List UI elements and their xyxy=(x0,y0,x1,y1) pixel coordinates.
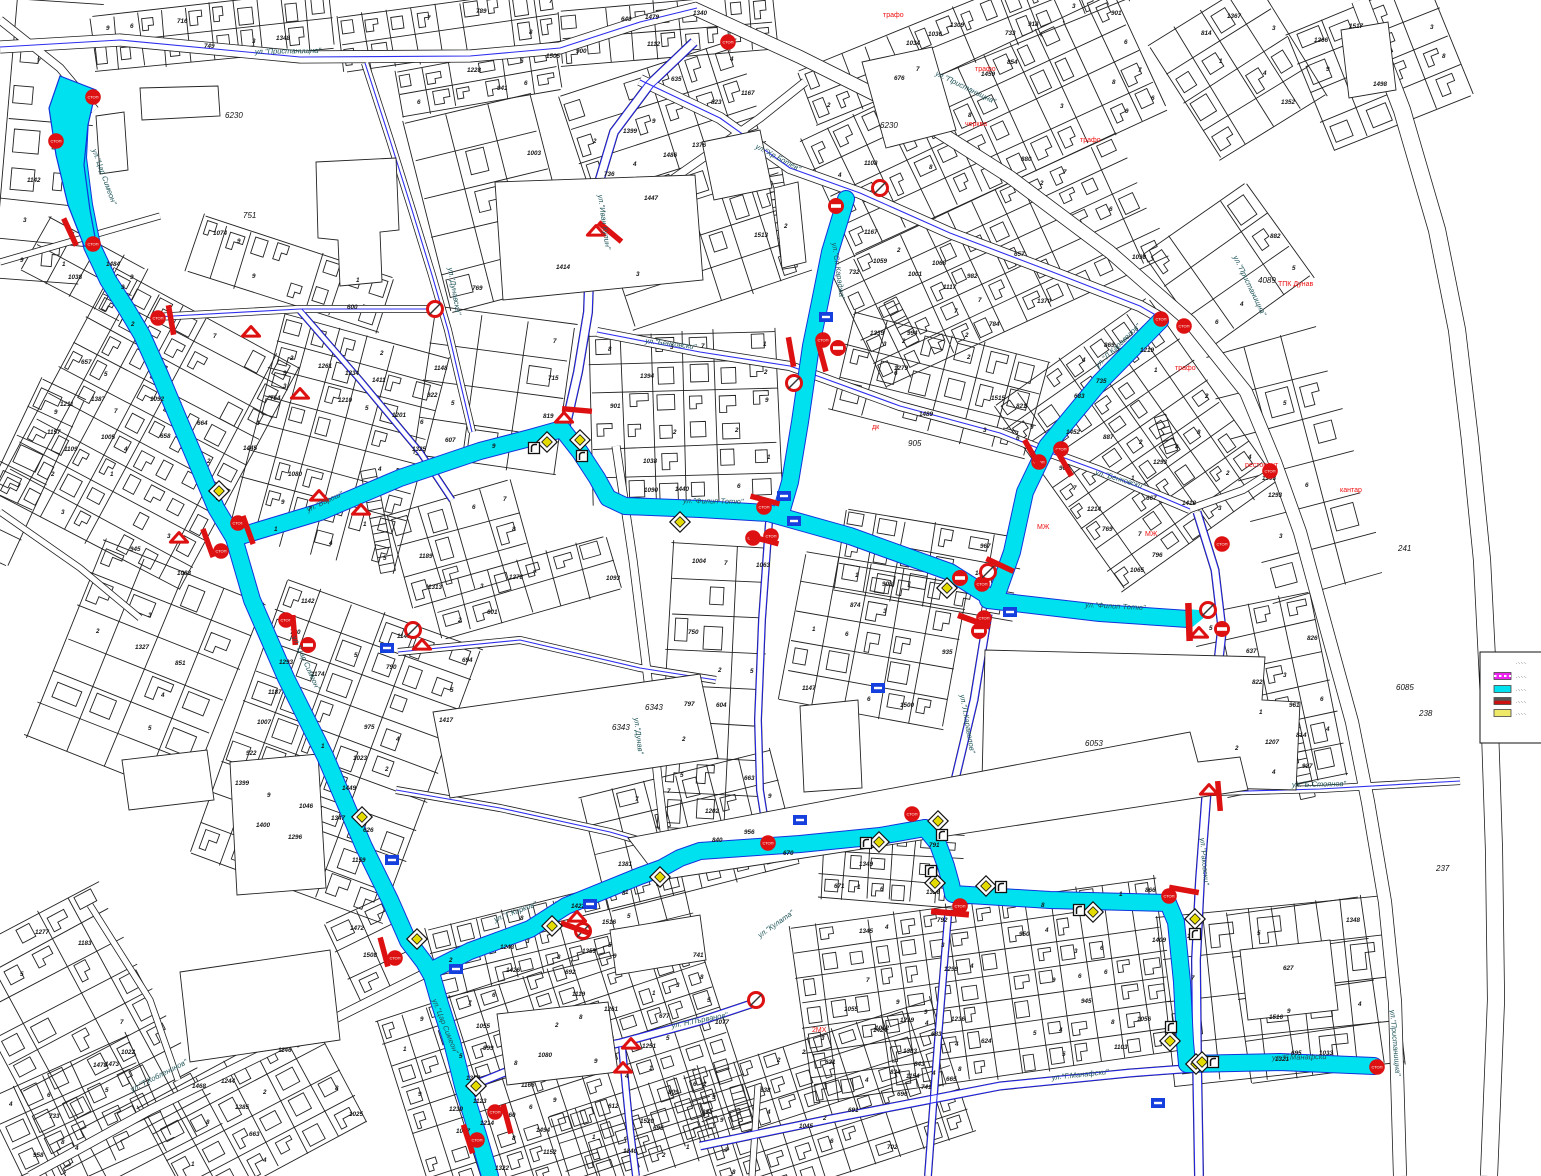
svg-text:2: 2 xyxy=(901,338,906,345)
svg-text:7: 7 xyxy=(866,977,870,984)
svg-text:1296: 1296 xyxy=(288,834,303,841)
svg-text:241: 241 xyxy=(1397,544,1411,553)
svg-text:1207: 1207 xyxy=(1265,739,1280,746)
svg-text:1: 1 xyxy=(763,341,767,348)
svg-text:1513: 1513 xyxy=(754,232,769,239)
svg-text:1211: 1211 xyxy=(60,401,74,408)
svg-text:СТОП: СТОП xyxy=(762,841,773,846)
svg-text:2: 2 xyxy=(801,1049,806,1056)
svg-text:9: 9 xyxy=(267,792,271,799)
svg-text:7: 7 xyxy=(635,796,639,803)
svg-text:1093: 1093 xyxy=(606,575,621,582)
svg-text:695: 695 xyxy=(653,1125,664,1132)
svg-text:6: 6 xyxy=(420,419,424,426)
svg-text:6230: 6230 xyxy=(225,111,243,120)
svg-text:624: 624 xyxy=(981,1038,992,1045)
svg-text:2: 2 xyxy=(717,667,722,674)
svg-text:1103: 1103 xyxy=(1114,1044,1128,1051)
svg-text:6: 6 xyxy=(1100,945,1104,952)
svg-text:1367: 1367 xyxy=(1227,13,1242,20)
svg-text:5: 5 xyxy=(1292,265,1296,272)
svg-text:7: 7 xyxy=(916,66,920,73)
svg-text:8: 8 xyxy=(622,890,626,897)
svg-text:9: 9 xyxy=(420,1016,424,1023)
svg-text:СТОП: СТОП xyxy=(152,316,163,321)
svg-text:664: 664 xyxy=(197,420,208,427)
svg-text:1418: 1418 xyxy=(1182,500,1197,507)
svg-text:МЖ: МЖ xyxy=(1145,531,1158,538)
svg-text:790: 790 xyxy=(386,664,397,671)
svg-text:4: 4 xyxy=(395,736,400,743)
svg-text:7: 7 xyxy=(1063,169,1067,176)
svg-text:1098: 1098 xyxy=(1132,254,1147,261)
svg-text:1349: 1349 xyxy=(859,861,874,868)
svg-text:901: 901 xyxy=(1111,10,1122,17)
svg-text:927: 927 xyxy=(1302,763,1313,770)
svg-text:3: 3 xyxy=(1218,505,1222,512)
svg-text:СТОП: СТОП xyxy=(1155,317,1166,322)
svg-text:9: 9 xyxy=(1030,424,1034,431)
svg-text:4: 4 xyxy=(837,172,842,179)
svg-text:2: 2 xyxy=(734,427,739,434)
svg-text:1: 1 xyxy=(1154,367,1158,374)
svg-text:3: 3 xyxy=(480,583,484,590)
svg-text:1: 1 xyxy=(1219,58,1223,65)
svg-text:751: 751 xyxy=(243,211,256,220)
svg-text:трафо: трафо xyxy=(1175,365,1196,372)
svg-text:814: 814 xyxy=(1296,732,1307,739)
svg-text:СТОП: СТОП xyxy=(976,582,987,587)
svg-text:5: 5 xyxy=(354,652,358,659)
svg-text:735: 735 xyxy=(1096,378,1107,385)
svg-text:3: 3 xyxy=(676,982,680,989)
svg-text:1034: 1034 xyxy=(906,40,921,47)
svg-text:945: 945 xyxy=(1081,998,1092,1005)
svg-text:.·.·.·.: .·.·.·. xyxy=(1516,660,1527,666)
svg-text:6: 6 xyxy=(830,1138,834,1145)
svg-text:1473: 1473 xyxy=(105,1061,120,1068)
svg-text:7: 7 xyxy=(37,58,41,65)
svg-text:6: 6 xyxy=(529,1104,533,1111)
svg-text:6: 6 xyxy=(1109,206,1113,213)
svg-text:880: 880 xyxy=(1021,156,1032,163)
svg-text:4: 4 xyxy=(1058,1027,1063,1034)
svg-text:3: 3 xyxy=(61,509,65,516)
svg-text:6: 6 xyxy=(737,483,741,490)
svg-text:1261: 1261 xyxy=(604,1006,619,1013)
svg-text:1277: 1277 xyxy=(35,929,50,936)
svg-text:трафо: трафо xyxy=(975,66,996,73)
svg-text:2: 2 xyxy=(130,321,135,328)
svg-text:9: 9 xyxy=(720,1117,724,1124)
svg-text:6: 6 xyxy=(524,80,528,87)
svg-text:626: 626 xyxy=(363,827,374,834)
svg-text:1520: 1520 xyxy=(640,1118,655,1125)
svg-text:7: 7 xyxy=(114,408,118,415)
svg-text:1299: 1299 xyxy=(944,966,959,973)
svg-text:3: 3 xyxy=(983,427,987,434)
svg-text:792: 792 xyxy=(937,917,948,924)
svg-text:665: 665 xyxy=(946,1076,957,1083)
svg-text:6053: 6053 xyxy=(1085,739,1103,748)
svg-text:1080: 1080 xyxy=(538,1052,553,1059)
svg-text:6: 6 xyxy=(1215,319,1219,326)
svg-text:5: 5 xyxy=(105,1087,109,1094)
svg-text:2: 2 xyxy=(384,766,389,773)
svg-text:749: 749 xyxy=(204,43,215,50)
svg-text:7: 7 xyxy=(553,338,557,345)
svg-text:4: 4 xyxy=(1357,1001,1362,1008)
svg-text:604: 604 xyxy=(716,702,727,709)
svg-text:9: 9 xyxy=(924,1009,928,1016)
svg-text:7: 7 xyxy=(1138,67,1142,74)
svg-text:1: 1 xyxy=(857,884,861,891)
svg-text:1: 1 xyxy=(649,1065,653,1072)
svg-text:8: 8 xyxy=(557,954,561,961)
svg-text:1090: 1090 xyxy=(644,487,659,494)
svg-text:9: 9 xyxy=(1052,977,1056,984)
svg-text:1: 1 xyxy=(403,1046,407,1053)
svg-text:СТОП: СТОП xyxy=(1371,1065,1382,1070)
svg-text:6: 6 xyxy=(1124,39,1128,46)
svg-text:1452: 1452 xyxy=(1066,429,1081,436)
svg-text:696: 696 xyxy=(897,1091,908,1098)
svg-text:1359: 1359 xyxy=(582,948,597,955)
svg-text:1142: 1142 xyxy=(27,177,41,184)
svg-text:822: 822 xyxy=(1252,679,1263,686)
svg-text:4: 4 xyxy=(1081,357,1086,364)
svg-text:2: 2 xyxy=(206,458,211,465)
svg-text:5: 5 xyxy=(1062,1051,1066,1058)
svg-text:3: 3 xyxy=(883,608,887,615)
svg-text:3: 3 xyxy=(636,271,640,278)
svg-text:1278: 1278 xyxy=(509,574,524,581)
svg-text:826: 826 xyxy=(1307,635,1318,642)
svg-text:702: 702 xyxy=(887,1144,898,1151)
svg-text:901: 901 xyxy=(610,403,621,410)
svg-text:6: 6 xyxy=(492,992,496,999)
svg-text:2МХ: 2МХ xyxy=(812,1027,827,1034)
svg-text:.·.·.·.: .·.·.·. xyxy=(1516,699,1527,705)
svg-text:733: 733 xyxy=(1005,30,1016,37)
svg-text:6: 6 xyxy=(47,1092,51,1099)
svg-text:2: 2 xyxy=(822,1115,827,1122)
svg-text:1394: 1394 xyxy=(640,373,655,380)
svg-text:8: 8 xyxy=(1442,53,1446,60)
svg-text:1022: 1022 xyxy=(121,1049,136,1056)
svg-text:4: 4 xyxy=(123,446,128,453)
svg-text:1228: 1228 xyxy=(467,67,482,74)
svg-text:7: 7 xyxy=(1191,975,1195,982)
svg-text:3: 3 xyxy=(1060,103,1064,110)
svg-text:908: 908 xyxy=(882,581,893,588)
svg-text:809: 809 xyxy=(668,1089,679,1096)
svg-text:883: 883 xyxy=(702,1109,713,1116)
svg-text:854: 854 xyxy=(1007,59,1018,66)
svg-text:6: 6 xyxy=(1320,696,1324,703)
svg-text:4: 4 xyxy=(160,692,165,699)
svg-text:4: 4 xyxy=(377,466,382,473)
svg-text:1383: 1383 xyxy=(903,1048,918,1055)
svg-text:1: 1 xyxy=(321,743,325,750)
svg-text:750: 750 xyxy=(688,629,699,636)
svg-text:796: 796 xyxy=(1152,552,1163,559)
svg-text:5: 5 xyxy=(608,942,612,949)
svg-text:2: 2 xyxy=(1138,439,1143,446)
svg-text:2: 2 xyxy=(661,1152,666,1159)
svg-text:1293: 1293 xyxy=(1268,492,1283,499)
svg-text:9: 9 xyxy=(768,793,772,800)
svg-text:1038: 1038 xyxy=(643,458,658,465)
svg-text:1005: 1005 xyxy=(101,434,116,441)
svg-text:8: 8 xyxy=(1041,902,1045,909)
svg-text:6: 6 xyxy=(1016,435,1020,442)
svg-text:5: 5 xyxy=(680,772,684,779)
svg-text:2: 2 xyxy=(262,1089,267,1096)
svg-text:5: 5 xyxy=(750,668,754,675)
svg-text:1399: 1399 xyxy=(623,128,638,135)
svg-text:683: 683 xyxy=(931,1031,942,1038)
svg-text:791: 791 xyxy=(929,842,940,849)
svg-text:1348: 1348 xyxy=(1346,917,1361,924)
svg-text:9: 9 xyxy=(896,999,900,1006)
svg-text:3: 3 xyxy=(883,341,887,348)
svg-text:7: 7 xyxy=(503,496,507,503)
svg-text:8: 8 xyxy=(512,1135,516,1142)
svg-text:2: 2 xyxy=(554,1022,559,1029)
svg-text:967: 967 xyxy=(980,543,991,550)
svg-text:СТОП: СТОП xyxy=(87,242,98,247)
svg-text:СТОП: СТОП xyxy=(758,505,769,510)
svg-text:.·.·.·.: .·.·.·. xyxy=(1516,711,1527,717)
svg-text:6: 6 xyxy=(867,696,871,703)
svg-text:6: 6 xyxy=(130,23,134,30)
svg-text:2: 2 xyxy=(1039,180,1044,187)
svg-text:1055: 1055 xyxy=(844,1006,859,1013)
svg-text:8: 8 xyxy=(1111,1019,1115,1026)
svg-text:1370: 1370 xyxy=(1037,298,1052,305)
svg-text:1038: 1038 xyxy=(68,274,83,281)
svg-text:4: 4 xyxy=(328,540,333,547)
svg-text:600: 600 xyxy=(347,304,358,311)
svg-text:5: 5 xyxy=(666,1035,670,1042)
svg-text:1400: 1400 xyxy=(256,822,271,829)
svg-text:6: 6 xyxy=(1305,482,1309,489)
svg-text:1092: 1092 xyxy=(150,396,165,403)
svg-text:1: 1 xyxy=(1259,709,1263,716)
svg-text:866: 866 xyxy=(1145,887,1156,894)
svg-text:1: 1 xyxy=(191,1161,195,1168)
svg-text:1148: 1148 xyxy=(434,365,448,372)
svg-text:3: 3 xyxy=(252,38,256,45)
svg-text:5: 5 xyxy=(520,58,524,65)
svg-text:4: 4 xyxy=(969,963,974,970)
svg-text:1261: 1261 xyxy=(318,363,333,370)
svg-text:8: 8 xyxy=(968,112,972,119)
svg-text:3: 3 xyxy=(526,938,530,945)
svg-text:трафо: трафо xyxy=(1080,137,1101,144)
svg-text:601: 601 xyxy=(487,609,498,616)
svg-text:5: 5 xyxy=(707,997,711,1004)
svg-text:ул."Филип Тотю": ул."Филип Тотю" xyxy=(682,496,744,506)
svg-text:1123: 1123 xyxy=(473,1098,487,1105)
svg-text:9: 9 xyxy=(712,1094,716,1101)
svg-text:2: 2 xyxy=(826,102,831,109)
svg-text:1068: 1068 xyxy=(932,260,947,267)
svg-text:741: 741 xyxy=(921,1084,932,1091)
svg-text:3: 3 xyxy=(1430,24,1434,31)
svg-text:8: 8 xyxy=(335,1085,339,1092)
svg-text:СТОП: СТОП xyxy=(50,139,61,144)
svg-text:1036: 1036 xyxy=(928,31,943,38)
svg-text:6: 6 xyxy=(894,370,898,377)
svg-text:3: 3 xyxy=(1074,948,1078,955)
svg-text:дк: дк xyxy=(872,424,880,431)
svg-text:кантар: кантар xyxy=(1340,487,1362,494)
svg-text:8: 8 xyxy=(514,1060,518,1067)
svg-text:СТОП: СТОП xyxy=(489,1110,500,1115)
svg-text:4: 4 xyxy=(1262,70,1267,77)
svg-text:1: 1 xyxy=(812,626,816,633)
svg-text:950: 950 xyxy=(1019,931,1030,938)
svg-text:1440: 1440 xyxy=(675,486,690,493)
svg-text:6343: 6343 xyxy=(612,723,630,732)
svg-text:5: 5 xyxy=(383,555,387,562)
svg-text:3: 3 xyxy=(941,942,945,949)
svg-text:1447: 1447 xyxy=(644,195,659,202)
svg-text:821: 821 xyxy=(1016,403,1027,410)
svg-text:1210: 1210 xyxy=(338,397,353,404)
svg-text:4: 4 xyxy=(624,1073,629,1080)
svg-text:7: 7 xyxy=(667,788,671,795)
svg-text:1157: 1157 xyxy=(47,429,61,436)
svg-text:5: 5 xyxy=(104,371,108,378)
svg-text:1: 1 xyxy=(363,521,367,528)
svg-text:922: 922 xyxy=(427,392,438,399)
svg-text:8: 8 xyxy=(512,526,516,533)
svg-text:7: 7 xyxy=(213,333,217,340)
svg-text:ул."Г.Манафски": ул."Г.Манафски" xyxy=(1271,1052,1330,1062)
svg-text:797: 797 xyxy=(684,701,695,708)
svg-text:715: 715 xyxy=(548,375,559,382)
svg-text:1293: 1293 xyxy=(1153,459,1168,466)
svg-text:676: 676 xyxy=(894,75,905,82)
svg-text:1414: 1414 xyxy=(556,264,571,271)
svg-text:4: 4 xyxy=(1271,769,1276,776)
svg-text:1334: 1334 xyxy=(345,370,360,377)
svg-text:1219: 1219 xyxy=(1140,347,1155,354)
svg-text:649: 649 xyxy=(621,16,632,23)
svg-text:9: 9 xyxy=(20,257,24,264)
svg-text:СТОП: СТОП xyxy=(389,956,400,961)
svg-text:6: 6 xyxy=(880,886,884,893)
svg-text:8: 8 xyxy=(608,346,612,353)
svg-text:СТОП: СТОП xyxy=(1178,324,1189,329)
svg-text:8: 8 xyxy=(1197,429,1201,436)
svg-text:1059: 1059 xyxy=(873,258,888,265)
svg-text:6: 6 xyxy=(417,99,421,106)
svg-text:1468: 1468 xyxy=(192,1083,207,1090)
svg-text:1322: 1322 xyxy=(495,1165,510,1172)
svg-text:961: 961 xyxy=(1289,702,1300,709)
svg-text:1348: 1348 xyxy=(276,35,291,42)
svg-text:1055: 1055 xyxy=(476,1023,491,1030)
svg-text:3: 3 xyxy=(167,533,171,540)
svg-text:6: 6 xyxy=(845,631,849,638)
svg-text:1505: 1505 xyxy=(546,53,561,60)
svg-text:7: 7 xyxy=(120,1019,124,1026)
svg-text:3: 3 xyxy=(23,217,27,224)
svg-text:2: 2 xyxy=(379,350,384,357)
svg-text:4: 4 xyxy=(924,1020,929,1027)
svg-text:1: 1 xyxy=(686,1144,690,1151)
svg-text:1309: 1309 xyxy=(950,22,965,29)
svg-text:1248: 1248 xyxy=(500,944,515,951)
svg-text:черква: черква xyxy=(965,121,987,128)
svg-text:1347: 1347 xyxy=(331,815,346,822)
svg-text:670: 670 xyxy=(783,850,794,857)
svg-text:1001: 1001 xyxy=(908,271,923,278)
svg-text:1472: 1472 xyxy=(350,925,365,932)
svg-text:1381: 1381 xyxy=(618,861,633,868)
svg-text:3: 3 xyxy=(1279,533,1283,540)
svg-text:612: 612 xyxy=(608,1103,619,1110)
svg-text:1399: 1399 xyxy=(235,780,250,787)
svg-text:9: 9 xyxy=(652,118,656,125)
svg-text:1494: 1494 xyxy=(536,1127,551,1134)
svg-text:9: 9 xyxy=(54,409,58,416)
svg-text:1119: 1119 xyxy=(572,991,586,998)
svg-text:1: 1 xyxy=(274,526,278,533)
svg-text:1: 1 xyxy=(592,1134,596,1141)
svg-text:7: 7 xyxy=(701,343,705,350)
svg-text:ресторант: ресторант xyxy=(1245,462,1279,469)
svg-text:887: 887 xyxy=(1103,434,1114,441)
svg-text:1376: 1376 xyxy=(692,142,707,149)
svg-text:691: 691 xyxy=(848,1107,859,1114)
svg-text:1063: 1063 xyxy=(756,562,771,569)
svg-text:627: 627 xyxy=(1283,965,1294,972)
svg-text:МЖ: МЖ xyxy=(1037,524,1050,531)
svg-text:9: 9 xyxy=(283,370,287,377)
svg-text:692: 692 xyxy=(565,969,576,976)
svg-text:9: 9 xyxy=(765,397,769,404)
svg-text:1339: 1339 xyxy=(870,330,885,337)
svg-text:5: 5 xyxy=(365,405,369,412)
svg-text:4: 4 xyxy=(931,1070,936,1077)
svg-text:2: 2 xyxy=(783,223,788,230)
svg-text:5: 5 xyxy=(627,913,631,920)
svg-text:922: 922 xyxy=(246,750,257,757)
svg-text:238: 238 xyxy=(1418,709,1433,718)
svg-text:2: 2 xyxy=(776,1057,781,1064)
svg-text:1500: 1500 xyxy=(900,702,915,709)
svg-text:2: 2 xyxy=(672,429,677,436)
svg-text:3: 3 xyxy=(283,383,287,390)
svg-text:9: 9 xyxy=(613,953,617,960)
svg-text:2: 2 xyxy=(448,957,453,964)
svg-text:7: 7 xyxy=(1138,531,1142,538)
svg-text:1387: 1387 xyxy=(91,396,106,403)
svg-text:1251: 1251 xyxy=(642,1043,657,1050)
svg-text:1: 1 xyxy=(652,990,656,997)
svg-text:694: 694 xyxy=(462,657,473,664)
svg-text:1486: 1486 xyxy=(663,152,678,159)
svg-text:1479: 1479 xyxy=(645,14,660,21)
svg-text:677: 677 xyxy=(659,1013,670,1020)
svg-text:1007: 1007 xyxy=(257,719,272,726)
svg-text:1142: 1142 xyxy=(301,598,315,605)
